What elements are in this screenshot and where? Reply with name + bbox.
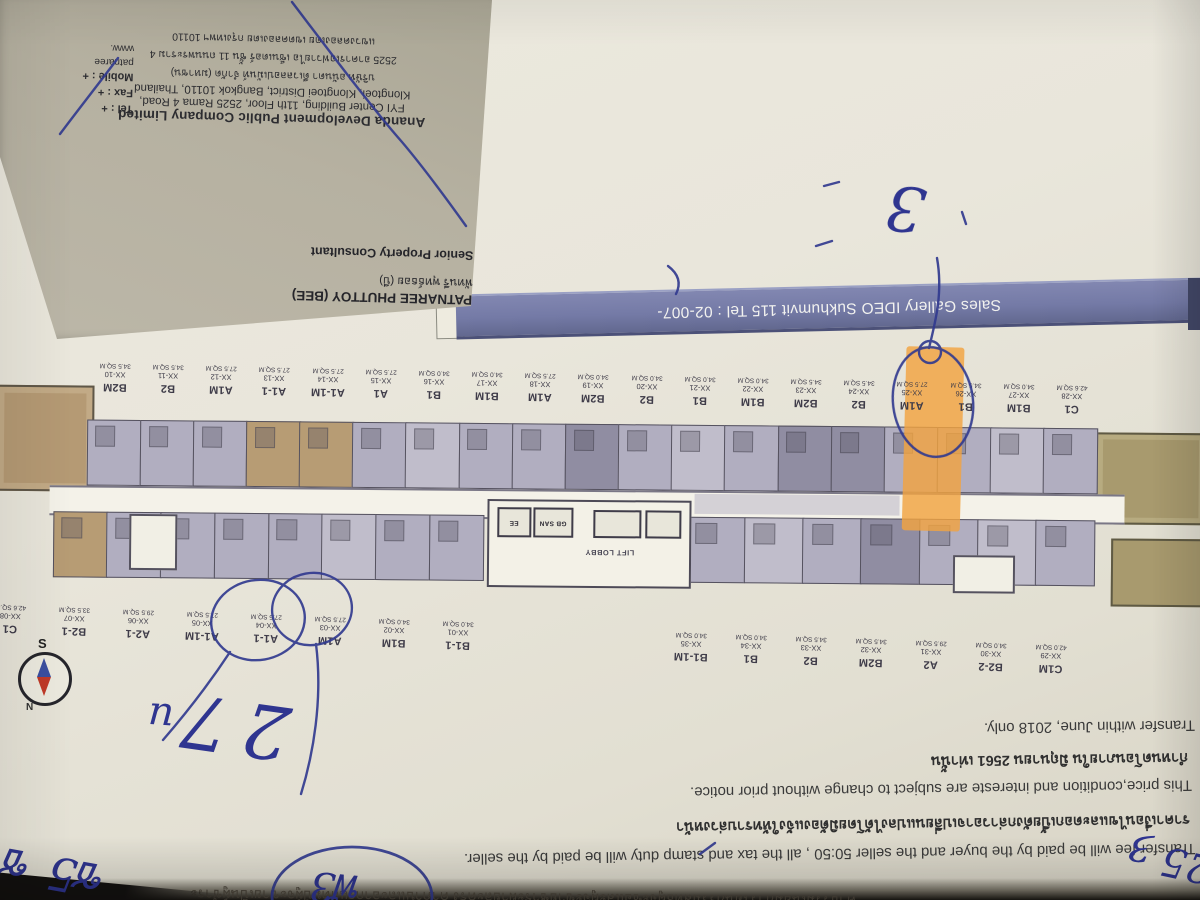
unit-label-XX-06: A2-1XX-0629.5 SQ.M — [106, 578, 172, 640]
unit-cell-XX-19 — [565, 424, 620, 490]
unit-cell-XX-29 — [1035, 520, 1095, 587]
stair-box — [129, 514, 177, 570]
compass-rose: S N — [18, 642, 70, 714]
unit-label-XX-12: A1MXX-1227.5 SQ.M — [194, 335, 249, 396]
unit-label-XX-34: B1XX-3434.0 SQ.M — [720, 603, 782, 665]
unit-cell-XX-01 — [429, 515, 485, 581]
card-tel: Tel : + — [101, 100, 133, 117]
unit-label-XX-20: B2XX-2034.0 SQ.M — [620, 345, 675, 406]
unit-cell-XX-15 — [352, 422, 407, 488]
compass-south-label: S — [38, 636, 47, 651]
unit-labels-bottom-left: C1XX-0842.6 SQ.MB2-1XX-0733.5 SQ.MA2-1XX… — [0, 573, 491, 652]
unit-label-XX-26: B1XX-2634.5 SQ.M — [938, 352, 993, 413]
unit-cell-XX-35 — [685, 517, 745, 584]
unit-cell-XX-34 — [744, 517, 804, 584]
unit-cell-XX-16 — [405, 422, 460, 488]
unit-label-XX-24: B2XX-2434.5 SQ.M — [832, 349, 887, 410]
lift-lobby: EE GB SAN LIFT LOBBY — [487, 499, 692, 589]
unit-label-XX-03: A1MXX-0327.5 SQ.M — [297, 585, 363, 647]
unit-cell-XX-14 — [299, 421, 354, 487]
unit-cells-bottom-right — [687, 517, 1096, 587]
unit-label-XX-21: B1XX-2134.0 SQ.M — [673, 346, 728, 407]
handwriting-u: u — [146, 693, 175, 741]
unit-label-XX-29: C1MXX-2942.0 SQ.M — [1020, 613, 1082, 675]
unit-label-XX-30: B2-2XX-3034.0 SQ.M — [960, 611, 1022, 673]
unit-cell-XX-18 — [511, 423, 566, 489]
card-email-partial: patnaree — [94, 54, 134, 69]
unit-label-XX-07: B2-1XX-0733.5 SQ.M — [42, 576, 108, 638]
unit-label-XX-10: B2MXX-1034.5 SQ.M — [88, 332, 143, 393]
unit-label-XX-28: C1XX-2842.6 SQ.M — [1045, 354, 1100, 415]
corridor-shade — [694, 494, 899, 516]
card-person-block: PATNAREE PHUTTOY (BEE) พัทนรี พุทธ์ธอย (… — [204, 225, 474, 308]
photo-of-floorplan-sheet: EE GB SAN LIFT LOBBY B2MXX-1034.5 SQ.MB2… — [0, 0, 1200, 900]
unit-labels-bottom-right: B1-1MXX-3534.0 SQ.MB1XX-3434.0 SQ.MB2XX-… — [660, 601, 1082, 675]
lobby-lift-shaft-1 — [593, 510, 641, 538]
unit-labels-top-row: B2MXX-1034.5 SQ.MB2XX-1134.5 SQ.MA1MXX-1… — [88, 332, 1099, 415]
card-person-title: Senior Property Consultant — [311, 244, 474, 262]
unit-label-XX-14: A1-1MXX-1427.5 SQ.M — [301, 337, 356, 398]
lobby-room-ee: EE — [497, 507, 531, 537]
unit-label-XX-11: B2XX-1134.5 SQ.M — [141, 334, 196, 395]
unit-label-XX-22: B1MXX-2234.0 SQ.M — [726, 347, 781, 408]
unit-cell-XX-05 — [214, 513, 270, 579]
unit-label-XX-05: A1-1MXX-0527.5 SQ.M — [170, 580, 236, 642]
unit-label-XX-27: B1MXX-2734.0 SQ.M — [992, 353, 1047, 414]
unit-cell-XX-22 — [724, 425, 779, 491]
compass-needle-blue — [37, 658, 51, 677]
bar-endcap-dark — [1188, 278, 1200, 330]
unit-cell-XX-24 — [830, 426, 885, 492]
unit-label-XX-35: B1-1MXX-3534.0 SQ.M — [660, 601, 722, 663]
unit-label-XX-15: A1XX-1527.5 SQ.M — [354, 339, 409, 400]
unit-label-XX-16: B1XX-1634.0 SQ.M — [407, 340, 462, 401]
compass-needle-red — [37, 677, 51, 696]
unit-label-XX-08: C1XX-0842.6 SQ.M — [0, 573, 44, 635]
plan-right-end-unit-lower — [1111, 538, 1200, 607]
unit-cells-bottom-left — [54, 511, 485, 581]
unit-label-XX-32: B2MXX-3234.5 SQ.M — [840, 607, 902, 669]
unit-label-XX-25: A1MXX-2527.5 SQ.M — [885, 351, 940, 412]
unit-cell-XX-33 — [802, 518, 862, 585]
handwriting-27: 27 — [163, 674, 296, 776]
unit-label-XX-01: B1-1XX-0134.0 SQ.M — [425, 590, 491, 652]
unit-cell-XX-17 — [458, 423, 513, 489]
unit-label-XX-04: A1-1XX-0427.5 SQ.M — [233, 583, 299, 645]
footer-thai-clipped: ค่าธรรมเนียมการโอนกรรมสิทธิ์ผู้จะซื้อและ… — [190, 883, 856, 900]
unit-cell-XX-20 — [618, 424, 673, 490]
unit-cell-XX-08 — [52, 511, 108, 577]
service-room-box — [953, 555, 1015, 594]
sales-gallery-text: Sales Gallery IDEO Sukhumvit 115 Tel : 0… — [657, 295, 1001, 321]
lobby-room-gbsan: GB SAN — [533, 507, 573, 537]
lift-lobby-label: LIFT LOBBY — [585, 548, 634, 557]
unit-cell-XX-23 — [777, 426, 832, 492]
card-fax: Fax : + — [98, 84, 134, 101]
unit-label-XX-19: B2MXX-1934.0 SQ.M — [566, 343, 621, 404]
compass-north-label: N — [26, 702, 33, 713]
unit-cell-XX-27 — [990, 427, 1045, 493]
unit-cell-XX-03 — [321, 514, 377, 580]
unit-cell-XX-13 — [246, 421, 301, 487]
unit-cell-XX-04 — [267, 513, 323, 579]
unit-label-XX-02: B1MXX-0234.0 SQ.M — [361, 588, 427, 650]
unit-cell-XX-11 — [139, 420, 194, 486]
card-mobile: Mobile : + — [82, 67, 133, 84]
card-contact-block: Tel : + Fax : + Mobile : + patnaree www. — [0, 0, 136, 117]
plan-left-end-unit — [0, 385, 95, 492]
lobby-lift-shaft-2 — [645, 510, 681, 538]
unit-cell-XX-21 — [671, 425, 726, 491]
footer-transfer-june: Transfer within June, 2018 only. — [984, 717, 1195, 737]
unit-cell-XX-10 — [86, 420, 141, 486]
unit-label-XX-33: B2XX-3334.5 SQ.M — [780, 605, 842, 667]
card-person-name-thai: พัทนรี พุทธ์ธอย (บี) — [379, 271, 473, 291]
footer-thai-transfer: กำหนดโอนภายใน มิถุนายน 2561 เท่านั้น — [931, 746, 1188, 773]
unit-label-XX-23: B2MXX-2334.5 SQ.M — [779, 348, 834, 409]
unit-cell-XX-28 — [1043, 428, 1098, 494]
card-web-partial: www. — [110, 40, 134, 55]
business-card: Ananda Development Public Company Limite… — [0, 0, 500, 345]
unit-label-XX-17: B1MXX-1734.0 SQ.M — [460, 341, 515, 402]
unit-cell-XX-12 — [192, 420, 247, 486]
unit-cell-XX-02 — [375, 514, 431, 580]
unit-label-XX-18: A1MXX-1827.5 SQ.M — [513, 342, 568, 403]
unit-label-XX-13: A1-1XX-1327.5 SQ.M — [248, 336, 303, 397]
handwriting-corner-circled: ฬ3 — [307, 854, 365, 900]
unit-label-XX-31: A2XX-3129.5 SQ.M — [900, 609, 962, 671]
